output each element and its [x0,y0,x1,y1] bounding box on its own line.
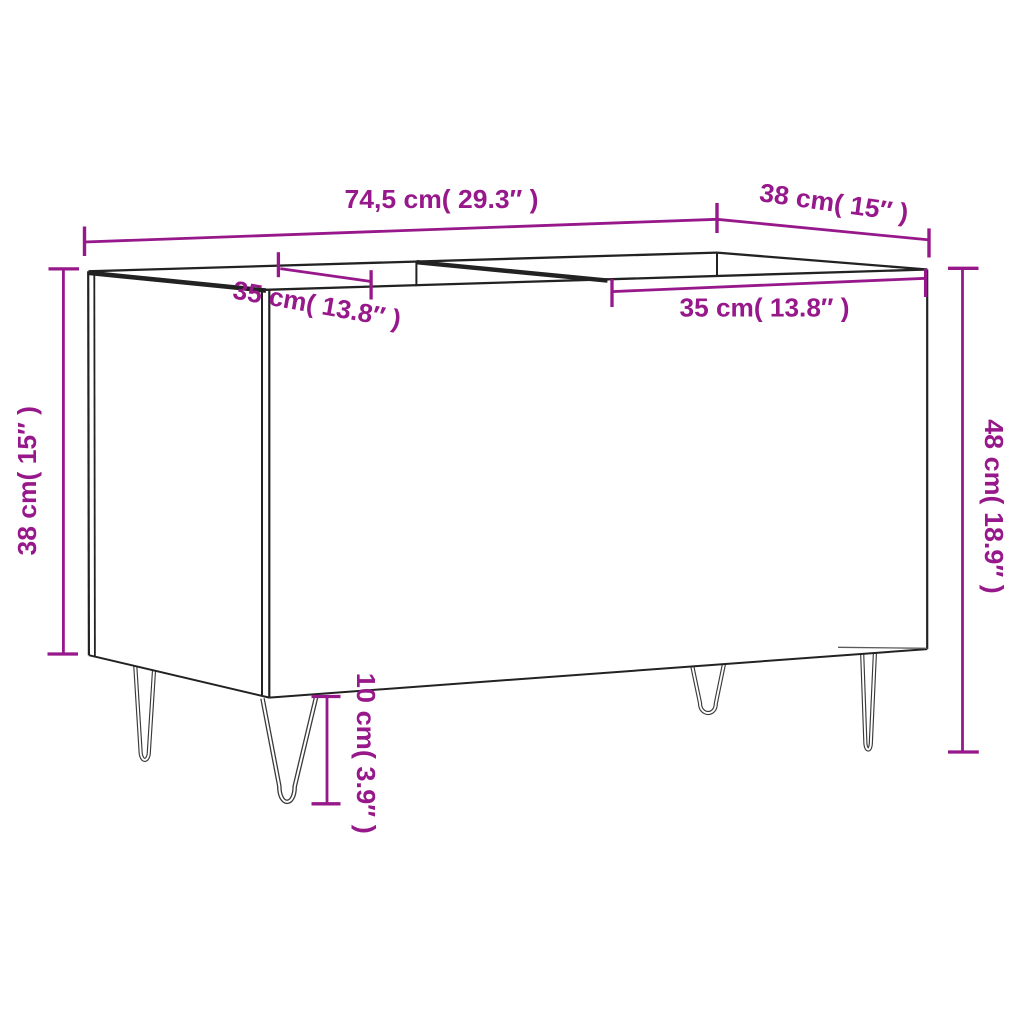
svg-text:10 cm( 3.9″ ): 10 cm( 3.9″ ) [351,673,381,834]
svg-text:48 cm( 18.9″ ): 48 cm( 18.9″ ) [979,419,1009,594]
svg-text:35 cm( 13.8″ ): 35 cm( 13.8″ ) [680,292,850,322]
svg-text:38 cm( 15″ ): 38 cm( 15″ ) [12,406,42,556]
svg-text:74,5 cm( 29.3″ ): 74,5 cm( 29.3″ ) [345,184,539,214]
